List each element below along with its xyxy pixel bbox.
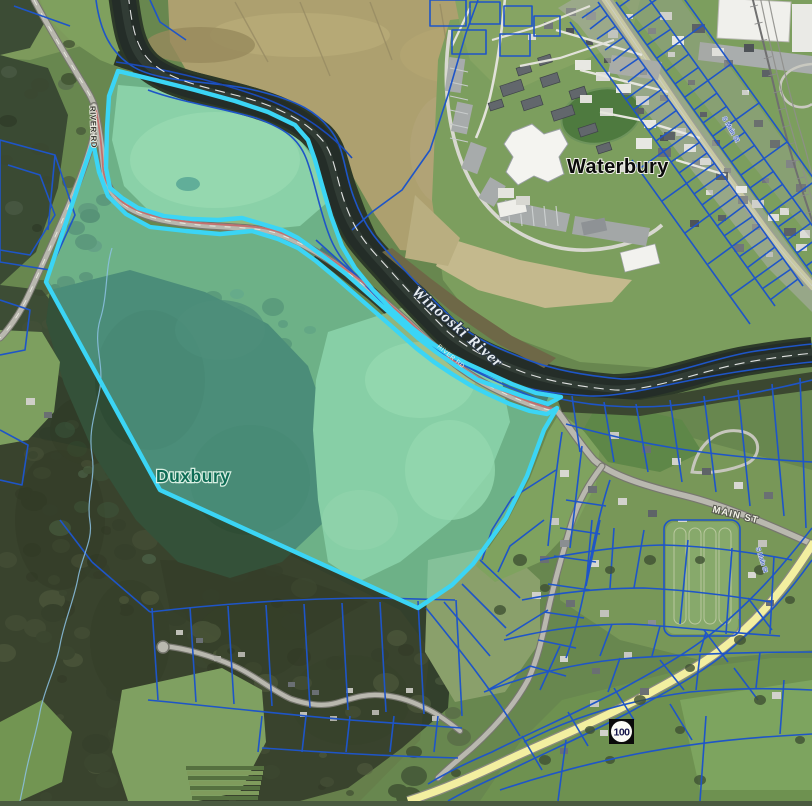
svg-text:Duxbury: Duxbury xyxy=(156,466,230,486)
svg-text:RIVER RD: RIVER RD xyxy=(88,106,98,149)
svg-text:100: 100 xyxy=(613,727,630,739)
svg-text:Waterbury: Waterbury xyxy=(567,156,669,178)
